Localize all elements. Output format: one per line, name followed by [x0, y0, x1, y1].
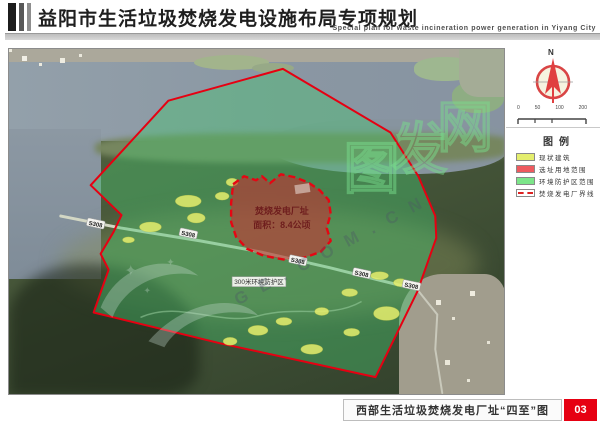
- svg-text:✦: ✦: [166, 258, 174, 269]
- legend-item-site-land: 选址用地范围: [516, 164, 600, 173]
- legend-item-protection-zone: 环境防护区范围: [516, 176, 600, 185]
- scale-tick: 0: [517, 106, 520, 111]
- scale-bar-rule: [517, 116, 587, 124]
- title-bar-accent-1: [8, 3, 16, 31]
- map-caption: 西部生活垃圾焚烧发电厂址“四至”图: [343, 399, 562, 421]
- north-arrow-icon: [531, 56, 575, 106]
- legend-title: 图例: [514, 133, 598, 148]
- footer-caption-bar: 西部生活垃圾焚烧发电厂址“四至”图 03: [343, 399, 597, 421]
- svg-text:✦: ✦: [143, 286, 151, 296]
- legend-item-label: 环境防护区范围: [539, 176, 595, 186]
- legend-swatch-red: [516, 165, 535, 173]
- legend-item-label: 选址用地范围: [539, 164, 587, 174]
- map-canvas: 焚烧发电厂址 面积：8.4公顷 S308 S308 S308 S308 S308…: [8, 48, 505, 395]
- svg-text:网: 网: [437, 96, 493, 158]
- title-bar-accent-3: [27, 3, 31, 31]
- map-overlay: 焚烧发电厂址 面积：8.4公顷 S308 S308 S308 S308 S308…: [9, 49, 504, 394]
- header-divider: [5, 33, 600, 40]
- legend-item-plant-boundary: 焚烧发电厂界线: [516, 188, 600, 197]
- scale-bar: 0 50 100 200: [517, 106, 587, 129]
- svg-text:✦: ✦: [125, 263, 138, 280]
- scale-tick: 50: [535, 106, 541, 111]
- legend-swatch-dashed-line: [516, 189, 535, 197]
- road-branch: [417, 290, 442, 393]
- legend-item-existing-buildings: 现状建筑: [516, 152, 600, 161]
- legend-item-label: 现状建筑: [539, 152, 571, 162]
- title-bar-accent-2: [19, 3, 24, 31]
- page-number-badge: 03: [564, 399, 597, 421]
- legend-item-label: 焚烧发电厂界线: [539, 188, 595, 198]
- site-label-line1: 焚烧发电厂址: [254, 205, 309, 216]
- legend-swatch-yellow: [516, 153, 535, 161]
- scale-tick: 100: [555, 106, 563, 111]
- scale-tick: 200: [579, 106, 587, 111]
- legend-panel: 现状建筑 选址用地范围 环境防护区范围 焚烧发电厂界线: [516, 152, 600, 197]
- page-subtitle-en: Special plan for waste incineration powe…: [333, 25, 596, 32]
- site-label-line2: 面积：8.4公顷: [253, 219, 310, 230]
- legend-swatch-green: [516, 177, 535, 185]
- sidebar-divider: [506, 127, 600, 128]
